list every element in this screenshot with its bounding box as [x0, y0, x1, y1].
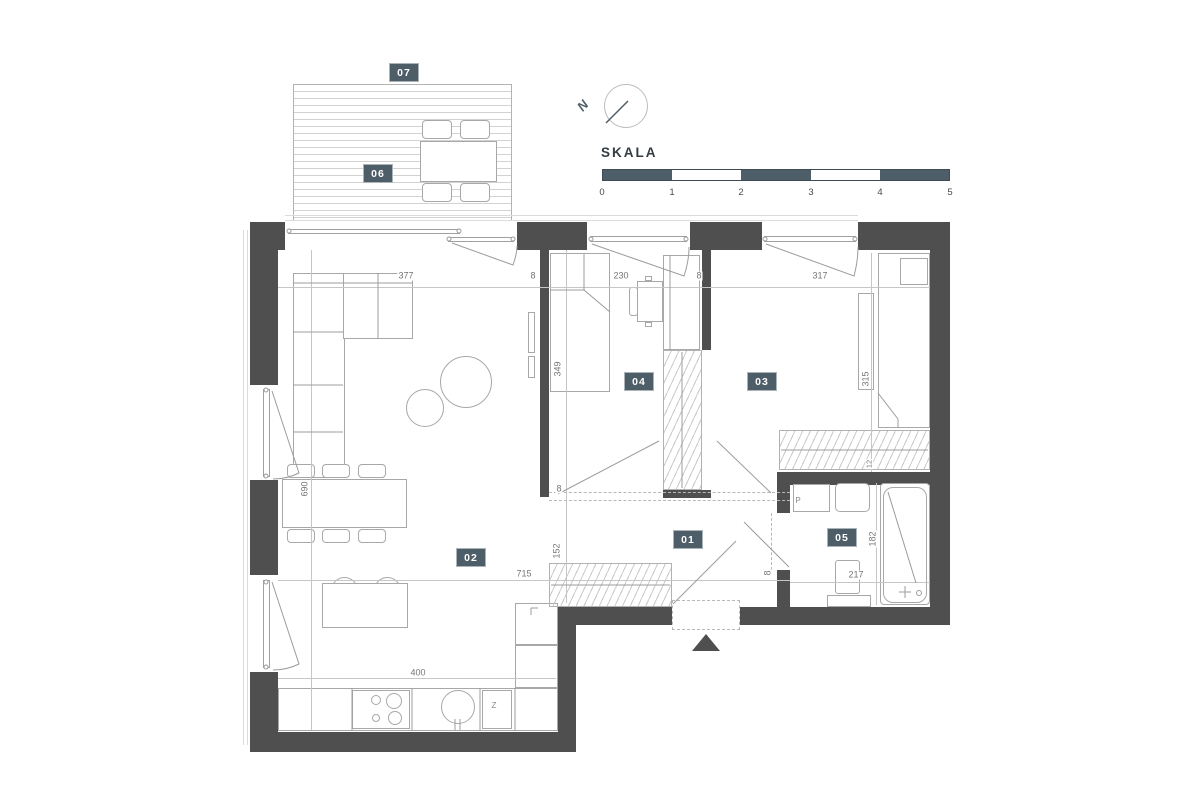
room-badge: 03: [747, 372, 777, 391]
entrance-opening: [672, 600, 740, 630]
hinge-dot: [264, 388, 269, 393]
hinge-dot: [457, 229, 462, 234]
hinge-dot: [264, 665, 269, 670]
compass: [604, 84, 648, 128]
dining-chair: [358, 464, 386, 478]
terrace-chair: [422, 120, 452, 139]
terrace-table: [420, 141, 497, 182]
dimension-label: 349: [554, 360, 563, 377]
tv-unit: [528, 356, 535, 378]
door-threshold: [771, 513, 772, 570]
sill-line: [247, 230, 248, 745]
scale-title: SKALA: [601, 145, 658, 160]
pouf: [440, 356, 492, 408]
compass-letter: N: [574, 97, 591, 114]
washing-machine-label: P: [795, 497, 800, 505]
dining-chair: [358, 529, 386, 543]
terrace-chair: [460, 120, 490, 139]
room-badge: 07: [389, 63, 419, 82]
sofa: [293, 273, 345, 478]
wall-segment: [690, 222, 762, 250]
kitchen-island: [322, 583, 408, 628]
wall-segment: [702, 250, 711, 350]
fridge: [515, 603, 558, 645]
door-swing: [558, 441, 659, 494]
tv-unit: [528, 312, 535, 353]
room-badge: 06: [363, 164, 393, 183]
burner: [388, 711, 402, 725]
wall-segment: [558, 607, 672, 625]
dishwasher-label: Z: [492, 702, 497, 710]
dining-chair: [322, 464, 350, 478]
window-swing: [452, 243, 517, 265]
room-badge: 01: [673, 530, 703, 549]
dimension-label: 230: [612, 272, 629, 281]
scale-tick: 1: [669, 187, 674, 198]
wardrobe-hatch: [779, 430, 930, 470]
scale-bar: [602, 169, 950, 181]
floor-plan-canvas: N SKALA 0 1 2 3 4 5: [0, 0, 1200, 800]
wall-segment: [558, 625, 576, 752]
dimension-line: [278, 287, 930, 288]
door-threshold: [549, 492, 790, 493]
dimension-line: [790, 582, 930, 583]
kitchen-sink: [441, 690, 475, 724]
burner: [372, 714, 380, 722]
door-swing: [673, 541, 736, 604]
dimension-label: 12: [865, 459, 873, 469]
hinge-dot: [684, 237, 689, 242]
burner: [386, 693, 402, 709]
bathtub-inner: [883, 487, 927, 603]
dimension-label: 317: [811, 272, 828, 281]
scale-segment: [603, 170, 672, 180]
wall-segment: [250, 480, 278, 575]
scale-tick: 0: [599, 187, 604, 198]
dimension-label: 217: [847, 571, 864, 580]
pillow: [900, 258, 928, 285]
dimension-label: 690: [301, 480, 310, 497]
dimension-label: 8: [555, 485, 562, 494]
door-swing: [744, 522, 789, 567]
linework: [0, 0, 1200, 800]
dimension-label: 182: [869, 530, 878, 547]
pouf: [406, 389, 444, 427]
scale-segment: [672, 170, 741, 180]
scale-segment: [811, 170, 880, 180]
room-badge: 02: [456, 548, 486, 567]
window-glazing: [448, 237, 514, 242]
hinge-dot: [511, 237, 516, 242]
hinge-dot: [763, 237, 768, 242]
door-swing: [717, 441, 771, 493]
window-glazing: [590, 236, 687, 242]
hinge-dot: [589, 237, 594, 242]
wall-segment: [250, 222, 278, 385]
dimension-label: 152: [553, 542, 562, 559]
window-glazing: [764, 236, 856, 242]
burner: [371, 695, 381, 705]
dimension-label: 377: [397, 272, 414, 281]
cabinet: [515, 645, 558, 688]
dimension-line: [311, 250, 312, 730]
window-glazing: [263, 580, 270, 668]
sill-line: [243, 230, 244, 745]
hinge-dot: [264, 474, 269, 479]
dishwasher: [482, 690, 512, 729]
hinge-dot: [853, 237, 858, 242]
wall-segment: [740, 607, 950, 625]
dimension-line: [278, 580, 790, 581]
scale-tick: 4: [877, 187, 882, 198]
window-glazing: [263, 389, 270, 477]
bathroom-sink: [835, 483, 870, 512]
sill-line: [285, 220, 858, 221]
hinge-dot: [447, 237, 452, 242]
room-badge: 05: [827, 528, 857, 547]
cabinet: [663, 255, 700, 350]
cooktop: [352, 690, 410, 729]
scale-tick: 2: [738, 187, 743, 198]
window-swing: [272, 582, 299, 670]
wall-segment: [777, 570, 790, 607]
door-threshold: [549, 500, 790, 501]
desk-lamp: [645, 322, 652, 327]
dining-chair: [322, 529, 350, 543]
dimension-line: [566, 250, 567, 603]
wardrobe-hatch: [663, 350, 702, 490]
room-badge: 04: [624, 372, 654, 391]
sofa: [343, 273, 413, 339]
hinge-dot: [264, 580, 269, 585]
dimension-line: [871, 253, 872, 472]
scale-segment: [880, 170, 949, 180]
entrance-arrow: [692, 634, 720, 651]
terrace-chair: [460, 183, 490, 202]
wall-segment: [517, 222, 587, 250]
dimension-label: 315: [862, 370, 871, 387]
dimension-label: 8: [695, 272, 702, 281]
dimension-label: 8: [764, 569, 773, 576]
desk-lamp: [645, 276, 652, 281]
wardrobe-hatch: [549, 563, 672, 607]
dimension-label: 715: [515, 570, 532, 579]
wall-segment: [930, 222, 950, 625]
dimension-line: [278, 678, 556, 679]
dimension-label: 8: [529, 272, 536, 281]
toilet-tank: [827, 595, 871, 607]
scale-segment: [741, 170, 810, 180]
window-glazing: [288, 229, 460, 234]
hinge-dot: [287, 229, 292, 234]
sill-line: [285, 215, 858, 216]
scale-tick: 5: [947, 187, 952, 198]
dimension-label: 400: [409, 669, 426, 678]
kitchen-counter: [278, 688, 558, 731]
scale-tick: 3: [808, 187, 813, 198]
terrace-chair: [422, 183, 452, 202]
wall-segment: [250, 732, 576, 752]
